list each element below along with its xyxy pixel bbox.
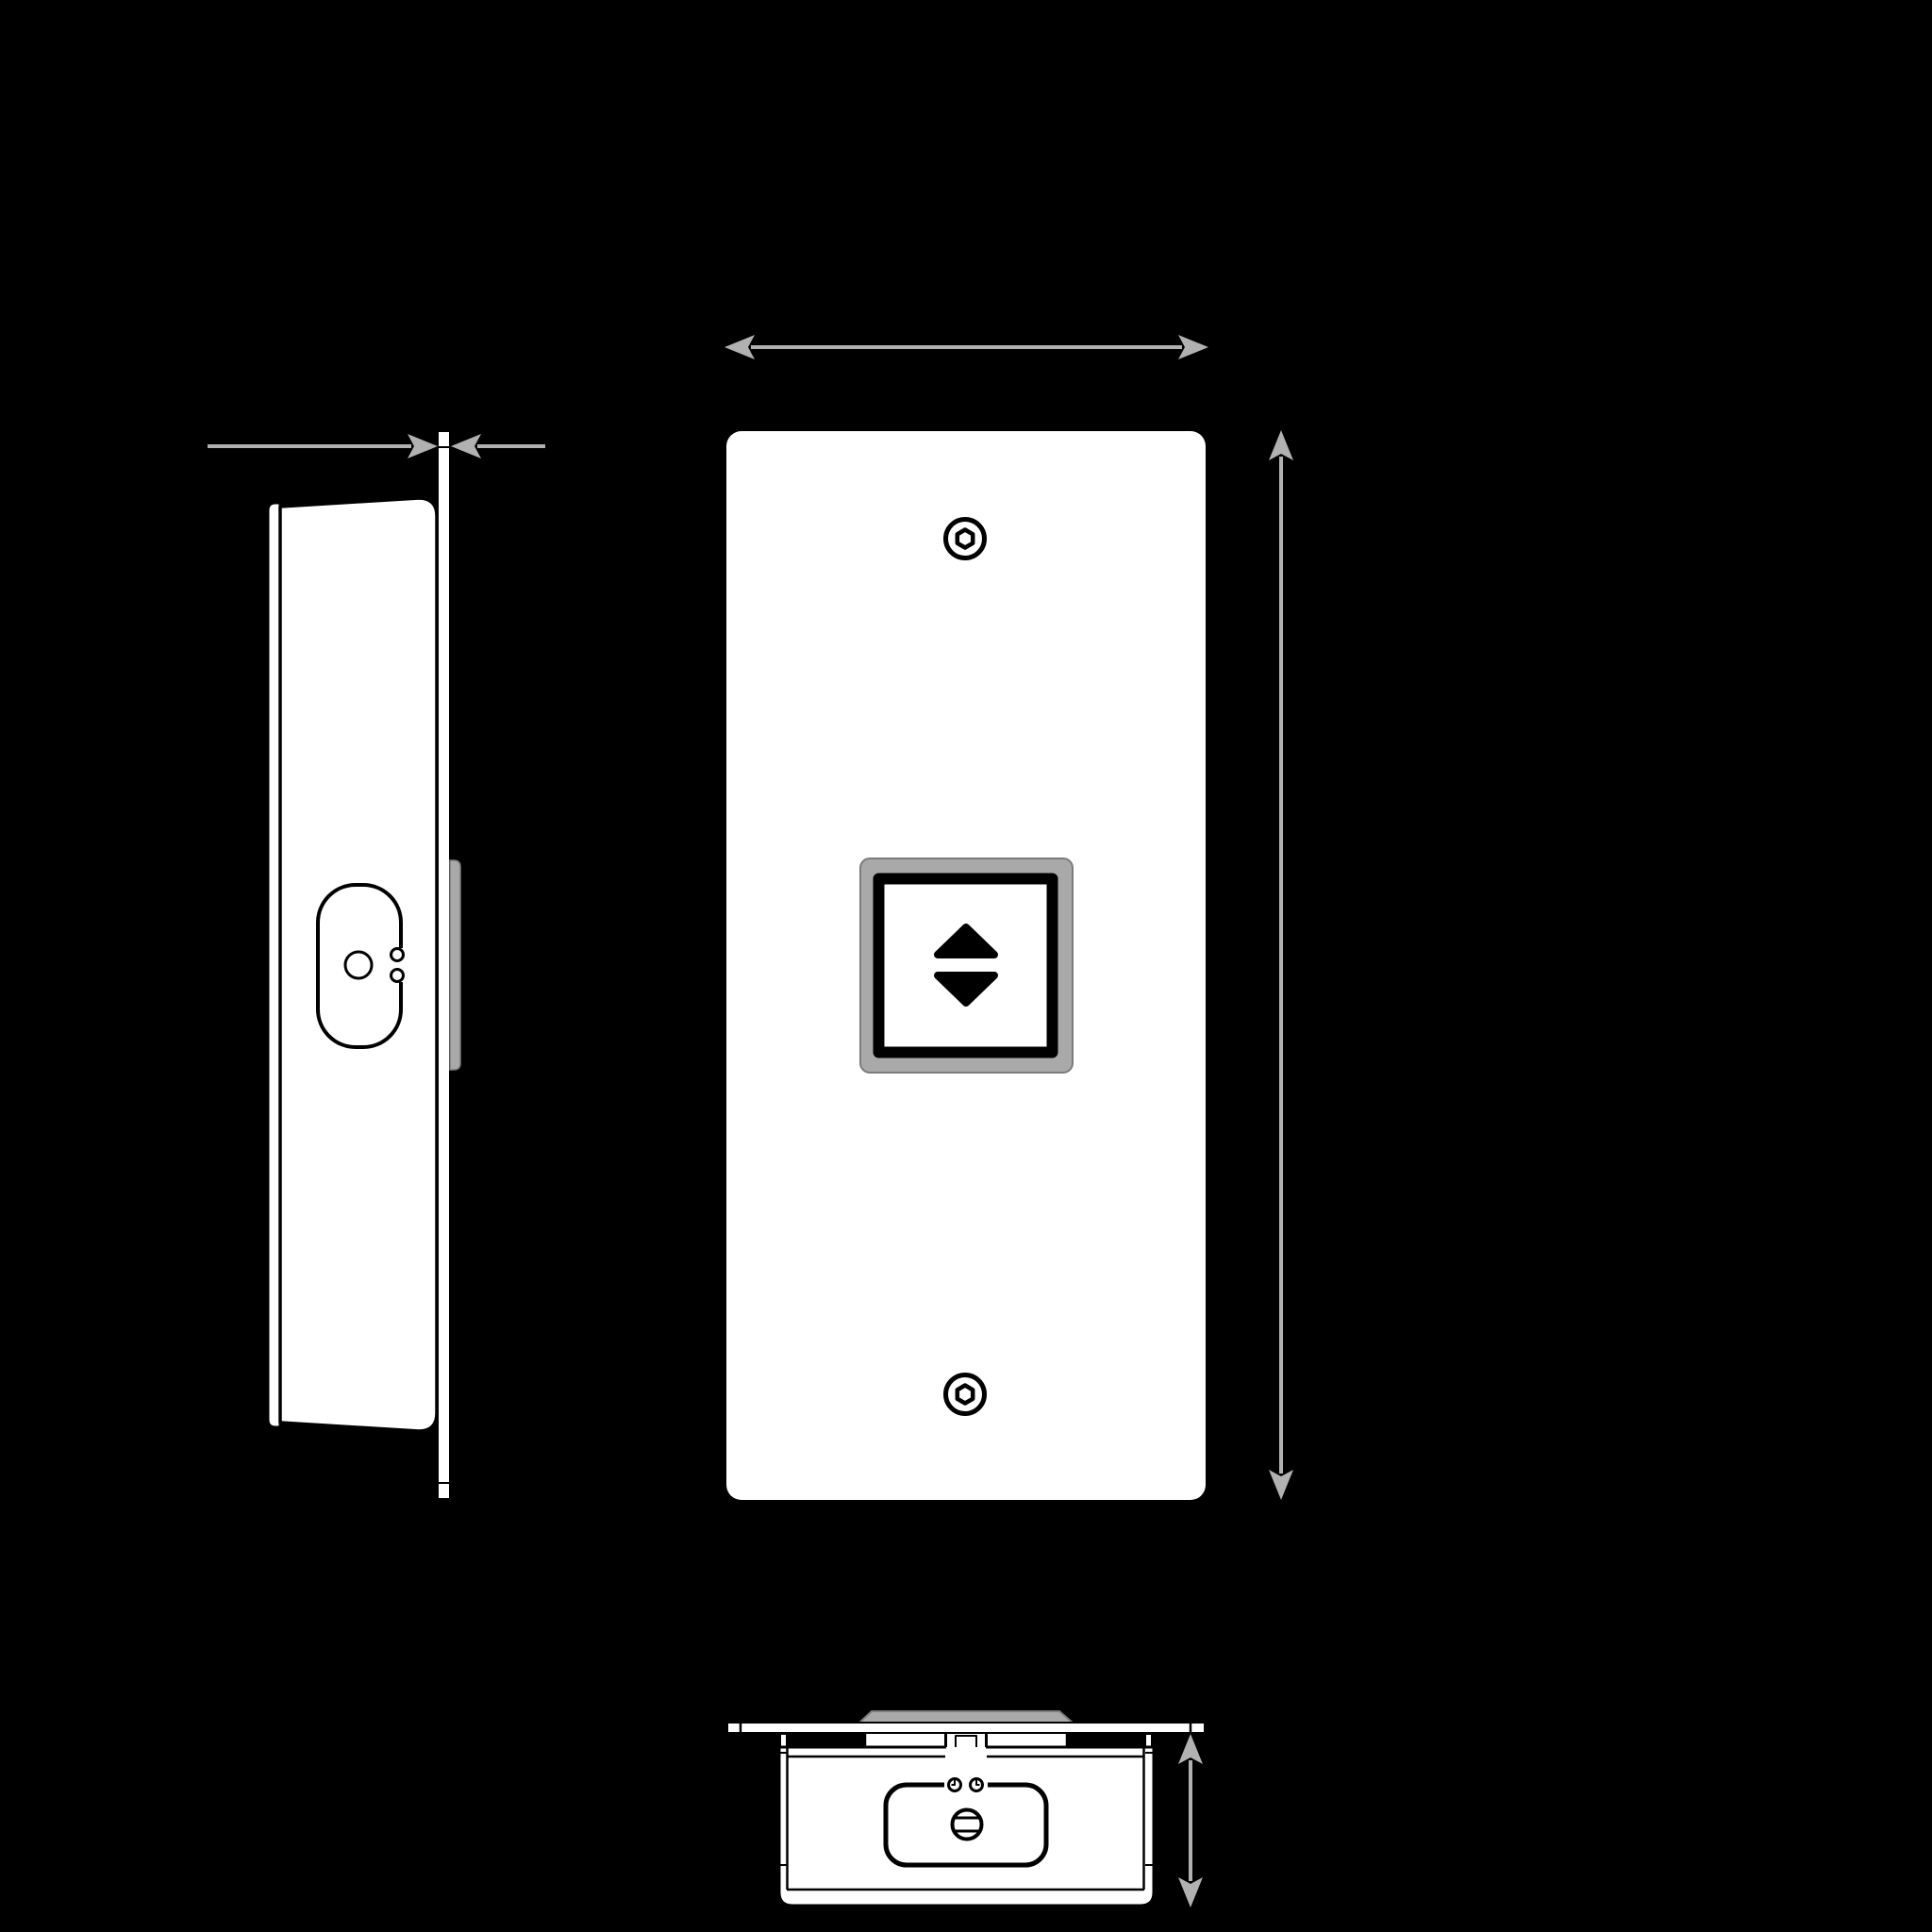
height-dimension-arrow bbox=[1269, 430, 1293, 1500]
side-faceplate-edge bbox=[439, 432, 449, 1498]
button-face bbox=[885, 885, 1047, 1047]
screw-bottom bbox=[946, 1375, 985, 1414]
bottom-faceplate-edge bbox=[727, 1723, 1205, 1733]
technical-drawing-canvas bbox=[0, 0, 1932, 1932]
width-dimension-arrow bbox=[724, 335, 1208, 359]
housing-wall-left-sliver bbox=[781, 1735, 786, 1747]
clip-right bbox=[988, 1734, 1067, 1747]
side-mechanism-hole bbox=[345, 952, 372, 978]
depth-dimension-arrow bbox=[1178, 1734, 1203, 1907]
bottom-view bbox=[727, 1711, 1205, 1907]
side-pin-lower bbox=[391, 970, 404, 982]
side-rear-cover bbox=[268, 503, 280, 1427]
screw-top bbox=[946, 520, 985, 558]
clip-left bbox=[864, 1734, 944, 1747]
side-view bbox=[208, 432, 545, 1498]
hex-socket-top bbox=[958, 530, 973, 548]
housing-wall-right-sliver bbox=[1146, 1735, 1151, 1747]
hex-socket-bottom bbox=[958, 1386, 973, 1404]
up-down-button bbox=[860, 858, 1073, 1073]
thickness-dimension-arrow bbox=[208, 434, 545, 458]
side-pin-upper bbox=[391, 949, 404, 961]
slotted-screw-icon bbox=[953, 1810, 982, 1840]
front-view bbox=[724, 335, 1293, 1500]
side-button-protrusion bbox=[450, 860, 460, 1070]
